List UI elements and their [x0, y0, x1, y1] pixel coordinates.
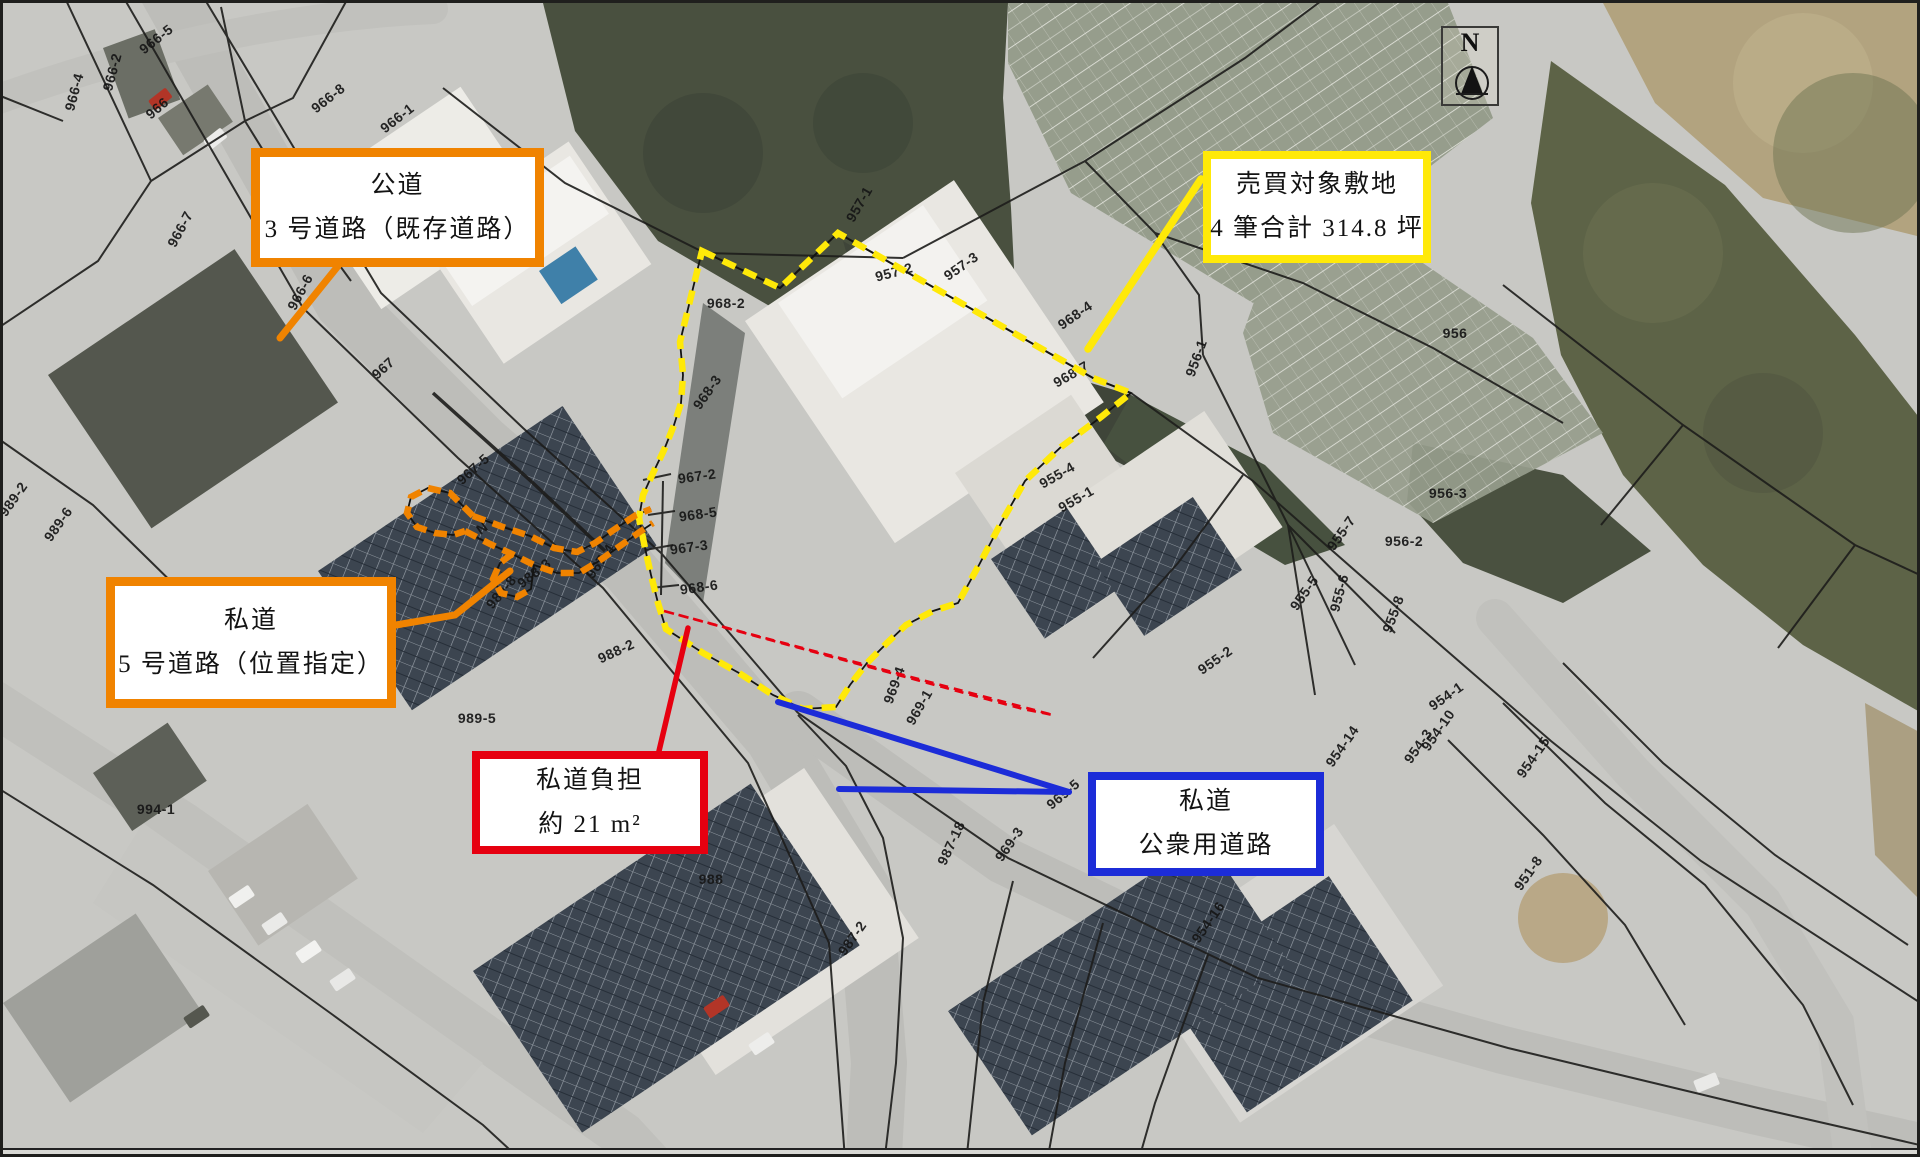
- callout-private-road-burden-line2: 約 21 m²: [538, 803, 641, 847]
- callout-public-road: 公道3 号道路（既存道路）: [251, 148, 544, 267]
- aerial-cadastral-map: 966-5966-2966-4966966-8966-1966-7966-696…: [0, 0, 1920, 1157]
- annotation-boxes: 公道3 号道路（既存道路）売買対象敷地4 筆合計 314.8 坪私道5 号道路（…: [3, 3, 1917, 1154]
- callout-private-public-road: 私道公衆用道路: [1088, 772, 1324, 876]
- callout-sale-site: 売買対象敷地4 筆合計 314.8 坪: [1203, 151, 1431, 263]
- callout-private-public-road-line1: 私道: [1179, 780, 1233, 824]
- callout-public-road-line2: 3 号道路（既存道路）: [265, 208, 531, 252]
- callout-private-road-5: 私道5 号道路（位置指定）: [106, 577, 396, 708]
- compass-icon: [1443, 28, 1501, 108]
- callout-private-road-burden-line1: 私道負担: [536, 759, 644, 803]
- north-arrow: N: [1441, 26, 1499, 106]
- callout-private-public-road-line2: 公衆用道路: [1138, 824, 1273, 868]
- callout-private-road-burden: 私道負担約 21 m²: [472, 751, 708, 854]
- callout-sale-site-line1: 売買対象敷地: [1236, 163, 1398, 207]
- callout-public-road-line1: 公道: [370, 164, 424, 208]
- callout-private-road-5-line1: 私道: [224, 599, 278, 643]
- callout-sale-site-line2: 4 筆合計 314.8 坪: [1210, 207, 1424, 251]
- callout-private-road-5-line2: 5 号道路（位置指定）: [118, 643, 384, 687]
